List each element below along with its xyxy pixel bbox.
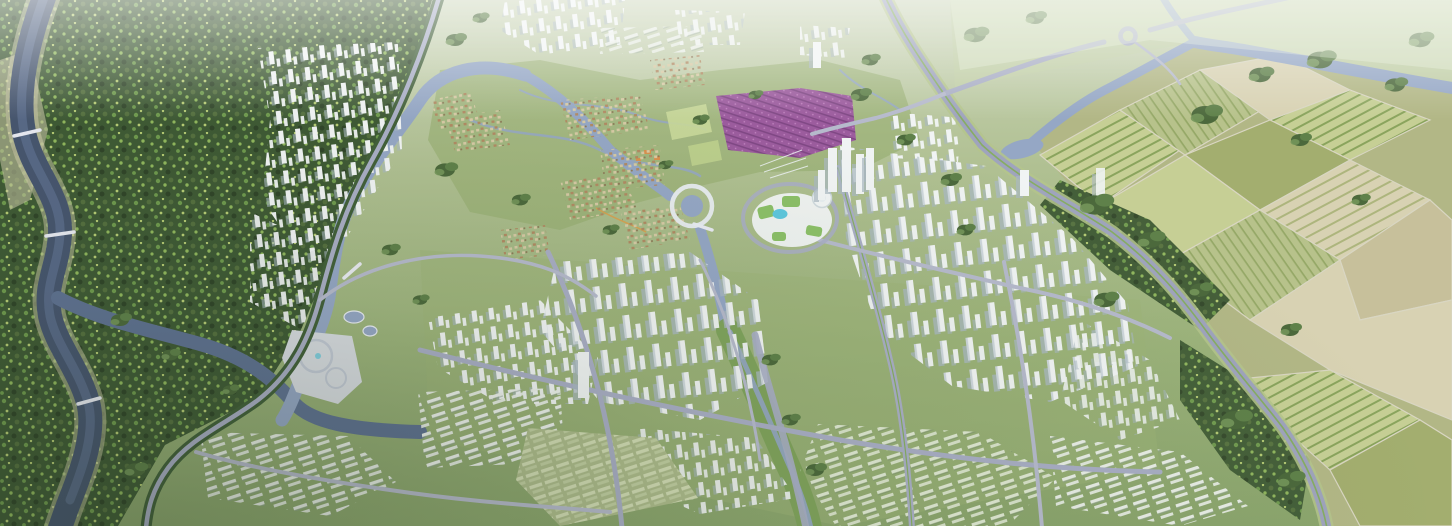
atmosphere-overlays xyxy=(0,0,1452,526)
masterplan-svg xyxy=(0,0,1452,526)
city-masterplan-render xyxy=(0,0,1452,526)
